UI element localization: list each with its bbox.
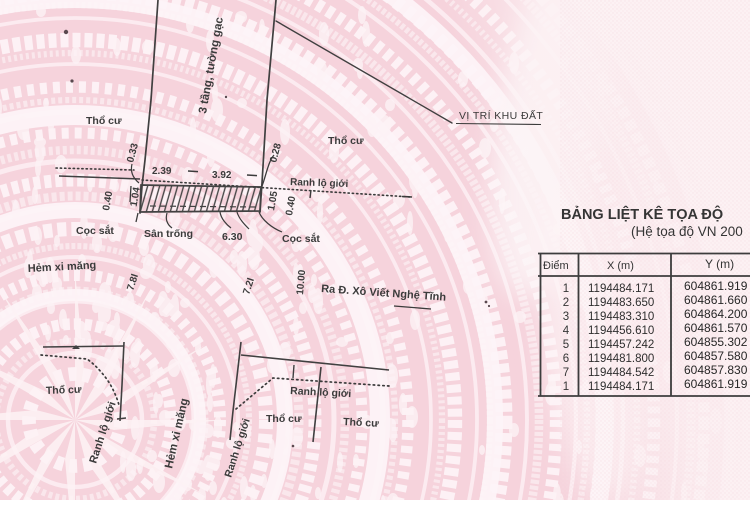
svg-text:6: 6 bbox=[563, 353, 569, 365]
svg-text:Y (m): Y (m) bbox=[705, 257, 734, 271]
svg-text:Thổ cư: Thổ cư bbox=[343, 416, 380, 430]
svg-text:1194481.800: 1194481.800 bbox=[588, 353, 654, 365]
svg-text:7: 7 bbox=[563, 367, 569, 379]
svg-text:604864.200: 604864.200 bbox=[684, 307, 748, 321]
svg-text:1194456.610: 1194456.610 bbox=[588, 325, 654, 337]
svg-text:Thổ cư: Thổ cư bbox=[86, 115, 122, 127]
svg-text:604861.919: 604861.919 bbox=[684, 279, 748, 293]
svg-text:VỊ TRÍ KHU ĐẤT: VỊ TRÍ KHU ĐẤT bbox=[459, 109, 543, 122]
svg-text:1194484.171: 1194484.171 bbox=[588, 283, 654, 295]
svg-text:Thổ cư: Thổ cư bbox=[266, 413, 302, 425]
svg-text:2: 2 bbox=[563, 297, 569, 309]
svg-text:3.92: 3.92 bbox=[212, 170, 232, 181]
svg-text:Điểm: Điểm bbox=[543, 260, 569, 272]
svg-text:1: 1 bbox=[563, 381, 569, 393]
svg-text:604861.660: 604861.660 bbox=[684, 293, 748, 307]
svg-text:604857.580: 604857.580 bbox=[684, 349, 748, 363]
svg-text:X (m): X (m) bbox=[607, 260, 634, 272]
svg-text:604861.570: 604861.570 bbox=[684, 321, 748, 335]
svg-text:1194484.171: 1194484.171 bbox=[588, 381, 654, 393]
svg-text:3: 3 bbox=[563, 311, 569, 323]
svg-text:Cọc sắt: Cọc sắt bbox=[282, 232, 320, 245]
svg-text:(Hệ tọa độ VN 200: (Hệ tọa độ VN 200 bbox=[631, 224, 743, 239]
svg-text:Ranh lộ giới: Ranh lộ giới bbox=[290, 177, 349, 190]
svg-text:1: 1 bbox=[563, 283, 569, 295]
svg-text:2.39: 2.39 bbox=[152, 166, 172, 177]
svg-text:1194484.542: 1194484.542 bbox=[588, 367, 654, 379]
svg-text:Cọc sắt: Cọc sắt bbox=[76, 224, 114, 237]
svg-text:Thổ cư: Thổ cư bbox=[328, 135, 364, 147]
svg-text:604855.302: 604855.302 bbox=[684, 335, 748, 349]
svg-text:1194483.650: 1194483.650 bbox=[588, 297, 654, 309]
svg-text:604857.830: 604857.830 bbox=[684, 363, 748, 377]
svg-text:6.30: 6.30 bbox=[222, 231, 243, 243]
svg-text:10.00: 10.00 bbox=[295, 269, 308, 295]
svg-text:BẢNG LIỆT KÊ TỌA ĐỘ: BẢNG LIỆT KÊ TỌA ĐỘ bbox=[561, 205, 723, 223]
svg-text:604861.919: 604861.919 bbox=[684, 377, 748, 391]
svg-text:5: 5 bbox=[563, 339, 569, 351]
svg-text:Thổ cư: Thổ cư bbox=[46, 384, 82, 397]
svg-text:1194457.242: 1194457.242 bbox=[588, 339, 654, 351]
svg-text:4: 4 bbox=[563, 325, 570, 337]
svg-text:1194483.310: 1194483.310 bbox=[588, 311, 654, 323]
svg-text:Sân trống: Sân trống bbox=[144, 228, 193, 240]
